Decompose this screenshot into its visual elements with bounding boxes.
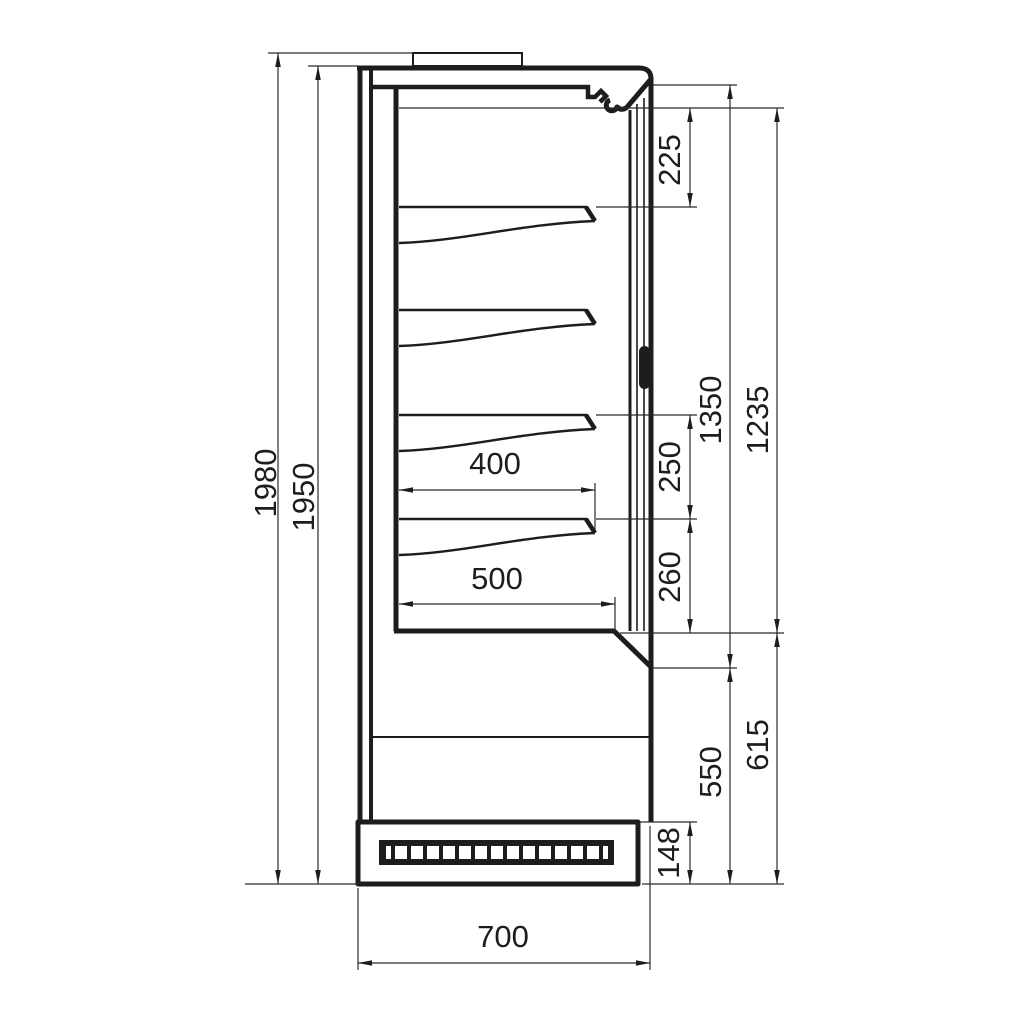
- dim-opening-height: 1350: [693, 85, 733, 668]
- dim-label-display-height: 1235: [740, 386, 775, 455]
- dim-label-body-height: 1950: [286, 463, 321, 532]
- top-cap: [413, 53, 522, 66]
- dim-shelf-depth: 400: [399, 446, 595, 493]
- dim-well-depth: 500: [399, 561, 615, 607]
- dim-overall-height: 1980: [248, 53, 283, 884]
- dim-base-depth: 700: [358, 919, 650, 966]
- dim-label-plinth-height: 148: [651, 827, 686, 879]
- interior-bottom: [394, 631, 651, 667]
- shelf-4: [399, 519, 595, 555]
- dim-label-well-depth: 500: [471, 561, 523, 596]
- dim-shelf-spacing-upper: 250: [652, 415, 693, 519]
- shelf-1: [399, 207, 595, 243]
- shelf-2: [399, 310, 595, 346]
- dim-label-top-to-first-shelf: 225: [652, 134, 687, 186]
- door-handle: [639, 346, 650, 389]
- dim-top-to-first-shelf: 225: [652, 108, 693, 207]
- base-plinth: [358, 822, 638, 884]
- technical-drawing: 1980 1950 225 250 260 1350 1235: [0, 0, 1024, 1024]
- drawing-canvas: 1980 1950 225 250 260 1350 1235: [0, 0, 1024, 1024]
- dim-shelf-spacing-lower: 260: [652, 519, 693, 633]
- dim-label-shelf-spacing-upper: 250: [652, 441, 687, 493]
- canopy-outline: [357, 68, 651, 111]
- dim-lower-front-height: 550: [693, 668, 733, 884]
- glass-door: [630, 78, 651, 667]
- dim-label-shelf-depth: 400: [469, 446, 521, 481]
- dim-label-shelf-spacing-lower: 260: [652, 551, 687, 603]
- dim-plinth-height: 148: [651, 822, 693, 884]
- dim-label-lower-front-height: 550: [693, 746, 728, 798]
- dim-body-height: 1950: [286, 66, 321, 884]
- dim-label-opening-height: 1350: [693, 376, 728, 445]
- dim-label-base-depth: 700: [477, 919, 529, 954]
- dim-display-height: 1235: [740, 108, 780, 633]
- dim-label-bottom-section-height: 615: [740, 719, 775, 771]
- dim-label-overall-height: 1980: [248, 449, 283, 518]
- canopy-air-outlet: [371, 87, 606, 102]
- dim-bottom-section-height: 615: [740, 633, 780, 884]
